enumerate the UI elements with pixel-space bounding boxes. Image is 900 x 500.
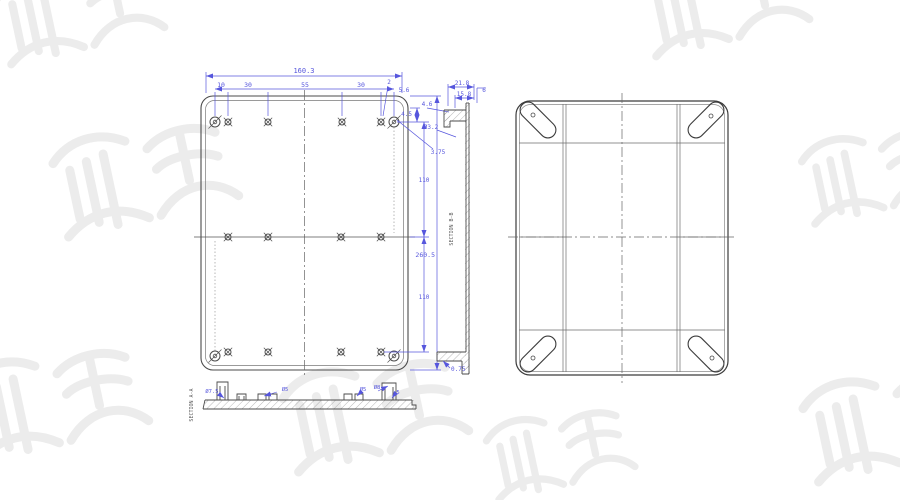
side-section-view: SECTION B-B 21.8 15.8 6 0.75: [437, 80, 486, 374]
dim-callout-2: 2: [387, 79, 391, 86]
watermark-layer: [0, 0, 900, 500]
dim-height-upper: 110: [419, 177, 430, 184]
dim-overall-width: 160.3: [293, 67, 314, 75]
dim-callout-3-75: 3.75: [431, 149, 446, 156]
dim-height-lower: 110: [419, 294, 430, 301]
dim-top-10: 10: [217, 81, 225, 89]
bottom-section-title: SECTION A-A: [189, 388, 195, 421]
dim-top-30a: 30: [244, 81, 252, 89]
side-section-title: SECTION B-B: [449, 212, 455, 245]
dim-21-8: 21.8: [455, 80, 470, 87]
rear-view: [508, 93, 736, 383]
front-view-dimension-lines: [206, 72, 456, 370]
dim-callout-4-6: 4.6: [422, 101, 433, 108]
dim-callout-3-2: Ø3.2: [424, 124, 439, 131]
dim-15-8: 15.8: [457, 91, 472, 98]
bottom-section-leaders: [219, 386, 395, 398]
dim-d5-right: Ø5: [360, 386, 367, 393]
drawing-canvas: 160.3 10 30 55 30 2 5.6 4.5 4.6 Ø3.2 3.7…: [0, 0, 900, 500]
cad-drawing-page: 160.3 10 30 55 30 2 5.6 4.5 4.6 Ø3.2 3.7…: [0, 0, 900, 500]
dim-top-30b: 30: [357, 81, 365, 89]
dim-callout-4-5: 4.5: [401, 111, 412, 118]
dim-d8: Ø8: [374, 384, 381, 391]
front-view: 160.3 10 30 55 30 2 5.6 4.5 4.6 Ø3.2 3.7…: [194, 67, 456, 377]
dim-5: 5: [396, 390, 399, 396]
dim-callout-5-6: 5.6: [399, 87, 410, 94]
dim-d7-5: Ø7.5: [205, 388, 218, 395]
dim-top-55: 55: [301, 81, 309, 89]
dim-height-overall: 260.5: [415, 251, 435, 259]
dim-6: 6: [482, 87, 486, 94]
dim-0-75: 0.75: [451, 366, 466, 373]
dim-d5-left: Ø5: [282, 386, 289, 393]
